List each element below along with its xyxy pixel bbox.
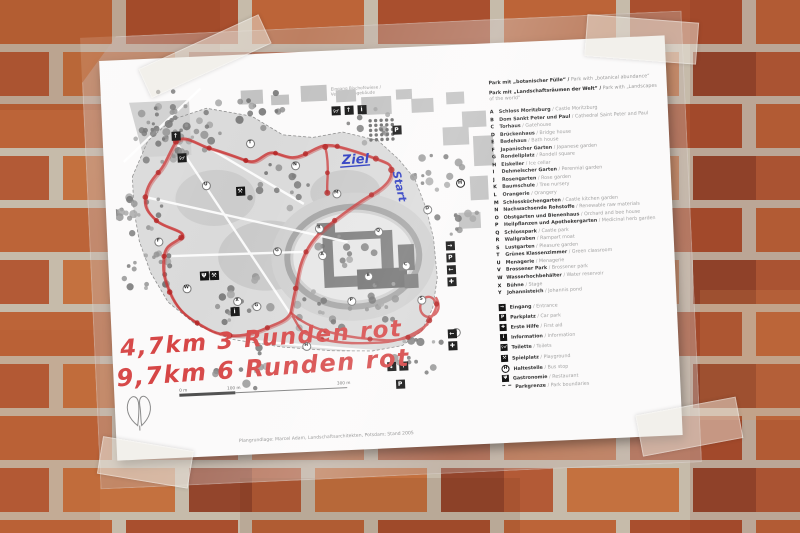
tape-top-right: [584, 14, 699, 64]
map-letter-R: R: [314, 224, 323, 233]
map-letter-T: T: [245, 139, 254, 148]
photo-of-park-map-on-brick-wall: Eingang Bischofswiese / Verwaltungsgebäu…: [0, 0, 800, 533]
map-icon-→: →: [445, 241, 454, 250]
map-letter-A: A: [317, 250, 326, 259]
map-icon-✚: ✚: [448, 341, 457, 350]
map-letter-N: N: [290, 161, 299, 170]
toilet-icon: ♀♂: [500, 344, 507, 351]
map-icon-P: P: [446, 253, 455, 262]
legend-icon-list: →Eingang / EntrancePParkplatz / Car park…: [499, 296, 677, 395]
map-letter-W: W: [182, 284, 191, 293]
legend-header-2: Park mit „Landschaftsräumen der Welt“ / …: [489, 84, 663, 104]
first-aid-icon: ✚: [499, 324, 506, 331]
legend-column: Park mit „botanischer Fülle“ / Park with…: [488, 74, 676, 396]
map-icon-⚒: ⚒: [209, 270, 218, 279]
map-icon-⚒: ⚒: [235, 186, 244, 195]
scale-label-300: 300 m: [337, 380, 351, 386]
map-letter-F: F: [154, 237, 163, 246]
restaurant-icon: Ψ: [502, 375, 509, 382]
map-letter-G: G: [252, 301, 261, 310]
map-letter-P: P: [347, 296, 356, 305]
map-icon-H: H: [455, 178, 464, 187]
map-letter-B: B: [363, 271, 372, 280]
map-letter-Q: Q: [373, 227, 382, 236]
map-letter-D: D: [422, 205, 431, 214]
scale-label-0: 0 m: [179, 387, 187, 392]
map-icon-Ψ: Ψ: [199, 271, 208, 280]
posted-map-sheet: Eingang Bischofswiese / Verwaltungsgebäu…: [80, 11, 702, 490]
scale-label-100: 100 m: [227, 385, 241, 391]
map-icon-P: P: [395, 379, 404, 388]
map-icon-←: ←: [446, 265, 455, 274]
map-letter-C: C: [401, 261, 410, 270]
map-icon-♀♂: ♀♂: [331, 106, 340, 115]
map-letter-M: M: [332, 189, 341, 198]
map-icon-♀♂: ♀♂: [177, 153, 186, 162]
map-icon-P: P: [392, 125, 401, 134]
map-icon-↑: ↑: [344, 105, 353, 114]
map-letter-X: X: [232, 296, 241, 305]
parking-icon: P: [499, 314, 506, 321]
map-icon-✚: ✚: [447, 277, 456, 286]
map-letter-G: G: [272, 246, 281, 255]
boundary-icon: [502, 385, 511, 387]
bus-stop-icon: H: [501, 365, 509, 373]
arrow-right-icon: →: [499, 304, 506, 311]
map-icon-↑: ↑: [171, 131, 180, 140]
orchard-grid: [368, 118, 394, 142]
playground-icon: ⚒: [501, 354, 508, 361]
legend-letter-list: ASchloss Moritzburg / Castle MoritzburgB…: [490, 101, 672, 297]
information-icon: i: [500, 334, 507, 341]
map-letter-U: U: [201, 181, 210, 190]
map-icon-i: i: [357, 104, 366, 113]
map-icon-i: i: [230, 306, 239, 315]
leaf-logo: [118, 385, 160, 433]
map-paper: Eingang Bischofswiese / Verwaltungsgebäu…: [99, 35, 683, 460]
map-letter-S: S: [417, 295, 426, 304]
map-icon-←: ←: [447, 329, 456, 338]
